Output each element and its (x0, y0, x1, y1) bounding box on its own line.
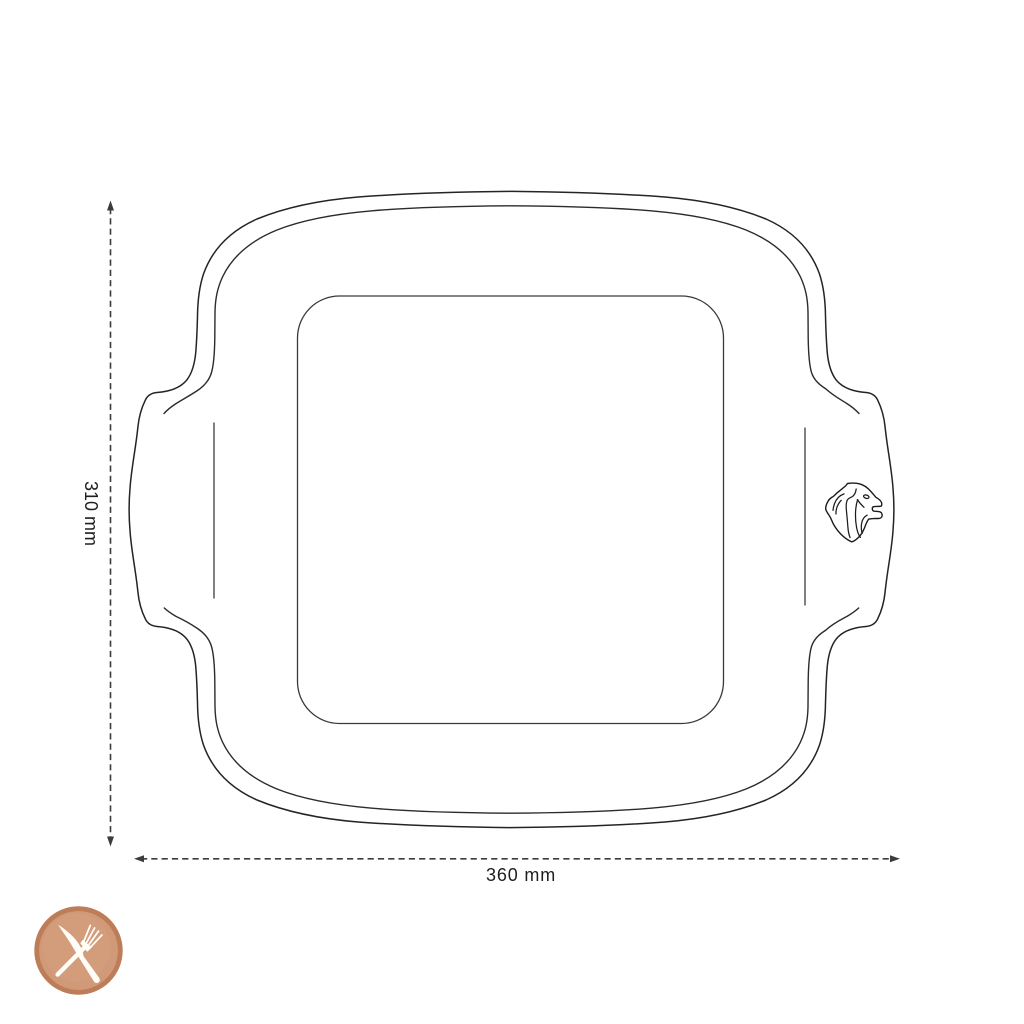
svg-text:310 mm: 310 mm (81, 481, 101, 546)
svg-text:360 mm: 360 mm (486, 865, 556, 885)
